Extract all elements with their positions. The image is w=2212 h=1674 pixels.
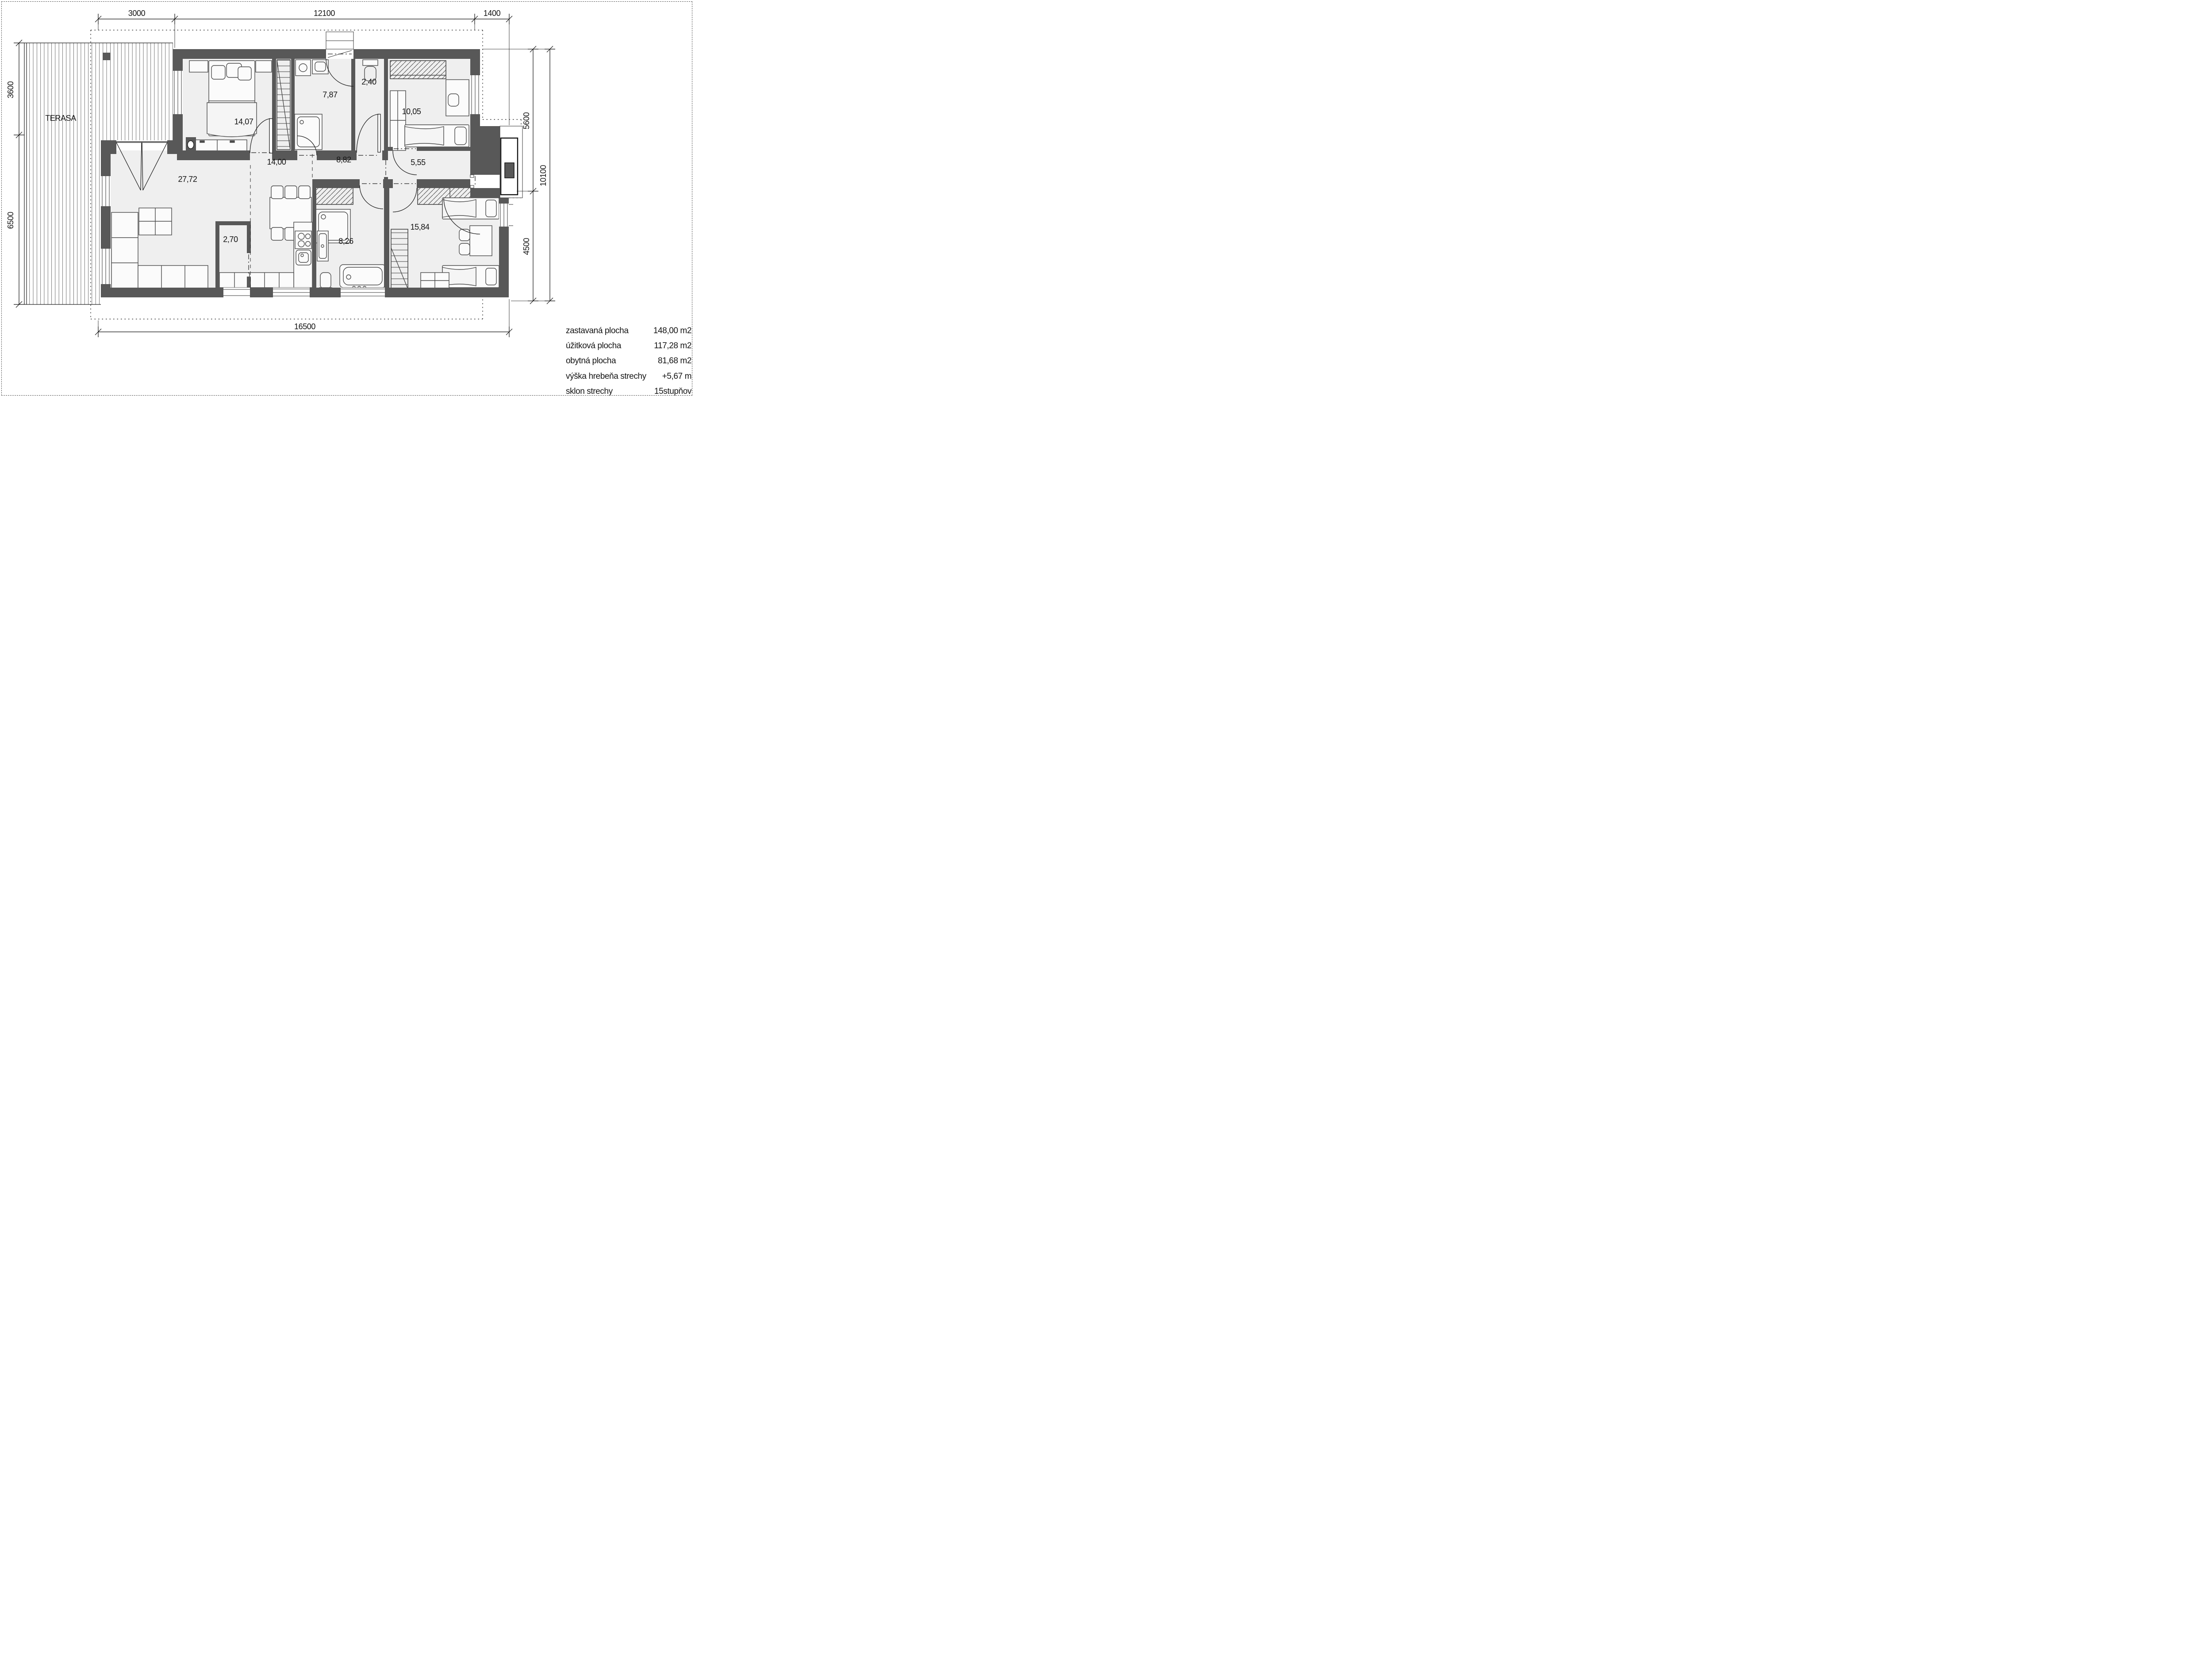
window-bedroom3-east: [499, 204, 513, 227]
doormat: [505, 163, 514, 178]
label-bathroom-1: 7,87: [323, 90, 338, 99]
dim-left-3600: 3600: [6, 81, 15, 98]
dim-right-10100: 10100: [539, 165, 548, 186]
pantry-garden-door: [223, 288, 250, 297]
wardrobe-shelves: [277, 60, 290, 150]
label-living-kitchen: 27,72: [178, 175, 197, 184]
closet-bedroom2: [390, 61, 446, 79]
kitchen-sink: [296, 250, 311, 265]
window-living-west-1: [101, 176, 111, 206]
shelf-strip-bedroom3: [391, 229, 408, 289]
nightstand-left: [189, 61, 208, 72]
summary-row-0-value: 148,00 m2: [653, 326, 691, 335]
floor-plan-page: 3000 12100 1400 3600 6500 5600 4500 1010…: [0, 0, 694, 397]
washing-machine: [296, 60, 311, 76]
summary-row-3-label: výška hrebeňa strechy: [566, 372, 647, 381]
label-entry: 5,55: [411, 158, 426, 167]
dim-bottom-16500: 16500: [294, 322, 315, 331]
label-hallway: 14,00: [267, 158, 286, 166]
bathtub: [340, 265, 386, 291]
dim-right-5600: 5600: [522, 112, 531, 129]
corner-lamp-stand: [186, 137, 196, 152]
window-bedroom2-east: [470, 75, 480, 114]
label-wc: 2,40: [361, 77, 376, 86]
dim-right-4500: 4500: [522, 238, 531, 255]
washbasin-bath1: [312, 60, 328, 74]
washbasin-bathroom2: [317, 231, 328, 261]
summary-row-2-label: obytná plocha: [566, 356, 616, 366]
floor-plan-canvas: 3000 12100 1400 3600 6500 5600 4500 1010…: [0, 0, 694, 397]
summary-row-1-value: 117,28 m2: [654, 341, 691, 350]
chest-bedroom3: [421, 273, 449, 289]
label-terrace: TERASA: [45, 114, 76, 123]
summary-row-1-label: úžitková plocha: [566, 341, 622, 350]
dim-top-3000: 3000: [128, 9, 146, 18]
label-bedroom-2: 10,05: [402, 107, 421, 116]
summary-row-4-value: 15stupňov: [654, 387, 692, 396]
window-bathroom2-south: [341, 288, 385, 297]
entrance-porch: [500, 126, 522, 198]
cabinet-bedroom2: [390, 91, 406, 150]
bed1-bedroom3: [442, 198, 499, 219]
shower-bath1: [295, 114, 322, 150]
dim-top-12100: 12100: [314, 9, 335, 18]
coffee-table: [139, 208, 172, 235]
summary-row-0-label: zastavaná plocha: [566, 326, 629, 335]
dim-top-1400: 1400: [484, 9, 501, 18]
window-kitchen-south: [273, 288, 310, 297]
terrace-deck-hatch-left: [27, 43, 101, 304]
summary-table: zastavaná plocha 148,00 m2 úžitková ploc…: [566, 326, 692, 396]
summary-row-2-value: 81,68 m2: [658, 356, 691, 366]
window-bedroom1-west: [173, 71, 183, 114]
label-hall: 8,82: [336, 155, 351, 164]
summary-row-4-label: sklon strechy: [566, 387, 613, 396]
entry-door-opening: [470, 175, 500, 188]
stove: [295, 231, 311, 249]
terrace-deck-hatch-top: [101, 43, 173, 140]
front-door: [326, 32, 353, 59]
terrace-post: [103, 53, 110, 60]
nightstand-right: [256, 61, 272, 72]
label-bedroom-3: 15,84: [410, 223, 429, 231]
label-bedroom-1: 14,07: [234, 117, 253, 126]
desk-bedroom2: [446, 80, 469, 116]
label-pantry: 2,70: [223, 235, 238, 244]
window-living-west-2: [101, 249, 111, 284]
label-bathroom-2: 8,26: [338, 237, 353, 246]
summary-row-3-value: +5,67 m: [662, 372, 691, 381]
bed-bedroom2: [405, 125, 469, 147]
bed2-bedroom3: [442, 266, 499, 288]
dim-left-6500: 6500: [6, 212, 15, 229]
